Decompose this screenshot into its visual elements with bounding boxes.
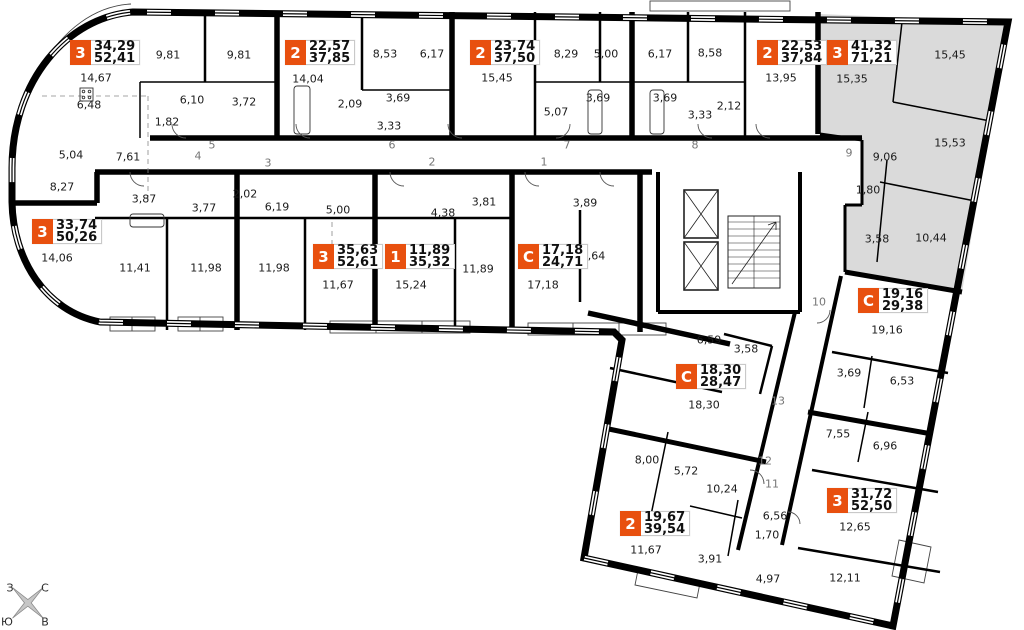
room-area-label: 2,09 [338, 98, 363, 111]
room-area-label: 5,00 [326, 204, 351, 217]
room-area-label: 3,33 [688, 109, 713, 122]
apartment-areas: 11,8935,32 [406, 244, 455, 269]
room-area-label: 3,69 [653, 92, 678, 105]
hall-number: 5 [209, 139, 216, 152]
room-area-label: 6,53 [890, 375, 915, 388]
compass-direction-label: Ю [1, 616, 13, 629]
room-area-label: 3,89 [573, 197, 598, 210]
apartment-type: С [518, 244, 539, 269]
room-area-label: 10,24 [706, 483, 738, 496]
room-area-label: 6,48 [77, 99, 102, 112]
room-area-label: 3,58 [734, 343, 759, 356]
apartment-type: 3 [827, 488, 848, 513]
hall-number: 4 [195, 150, 202, 163]
apartment-type: 3 [313, 244, 334, 269]
hall-number: 13 [771, 395, 785, 408]
room-area-label: 3,58 [865, 233, 890, 246]
room-area-label: 7,55 [826, 428, 851, 441]
room-area-label: 8,29 [554, 48, 579, 61]
room-area-label: 2,12 [717, 100, 742, 113]
room-area-label: 3,69 [586, 92, 611, 105]
total-area: 28,47 [700, 377, 741, 389]
apartment-type: 2 [285, 40, 306, 65]
total-area: 35,32 [409, 257, 450, 269]
room-area-label: 6,10 [180, 94, 205, 107]
room-area-label: 10,44 [915, 232, 947, 245]
floor-plan: 9,819,8114,676,486,101,823,725,047,618,2… [0, 0, 1024, 630]
room-area-label: 3,69 [386, 92, 411, 105]
room-area-label: 3,81 [472, 196, 497, 209]
total-area: 71,21 [851, 53, 892, 65]
apartment-areas: 22,5737,85 [306, 40, 355, 65]
compass-direction-label: С [41, 582, 49, 595]
hall-number: 2 [429, 156, 436, 169]
room-area-label: 15,35 [836, 73, 868, 86]
apartment-areas: 31,7252,50 [848, 488, 897, 513]
apartment-badge[interactable]: С18,3028,47 [676, 364, 746, 389]
hall-number: 10 [812, 296, 826, 309]
hall-number: 3 [265, 157, 272, 170]
apartment-badge[interactable]: 334,2952,41 [70, 40, 140, 65]
room-area-label: 12,11 [829, 572, 861, 585]
total-area: 37,85 [309, 53, 350, 65]
apartment-type: 2 [757, 40, 778, 65]
total-area: 37,84 [781, 53, 822, 65]
room-area-label: 18,30 [688, 399, 720, 412]
compass-direction-label: З [6, 582, 13, 595]
room-area-label: 14,06 [41, 252, 73, 265]
room-area-label: 11,98 [190, 262, 222, 275]
room-area-label: 8,00 [635, 454, 660, 467]
hall-number: 6 [389, 139, 396, 152]
apartment-type: С [858, 288, 879, 313]
room-area-label: 8,53 [373, 48, 398, 61]
labels-layer: 9,819,8114,676,486,101,823,725,047,618,2… [0, 0, 1024, 630]
apartment-badge[interactable]: 111,8935,32 [385, 244, 455, 269]
total-area: 52,61 [337, 257, 378, 269]
hall-number: 7 [564, 139, 571, 152]
apartment-badge[interactable]: 223,7437,50 [470, 40, 540, 65]
total-area: 52,50 [851, 501, 892, 513]
hall-number: 9 [846, 147, 853, 160]
room-area-label: 11,89 [462, 263, 494, 276]
room-area-label: 15,53 [934, 137, 966, 150]
room-area-label: 6,17 [420, 48, 445, 61]
apartment-type: 2 [620, 511, 641, 536]
apartment-type: 3 [827, 40, 848, 65]
apartment-areas: 34,2952,41 [91, 40, 140, 65]
apartment-badge[interactable]: 331,7252,50 [827, 488, 897, 513]
apartment-type: С [676, 364, 697, 389]
room-area-label: 6,17 [648, 48, 673, 61]
compass-direction-label: В [41, 616, 49, 629]
room-area-label: 17,18 [527, 279, 559, 292]
hall-number: 1 [541, 156, 548, 169]
room-area-label: 3,87 [132, 193, 157, 206]
apartment-badge[interactable]: С17,1824,71 [518, 244, 588, 269]
room-area-label: 6,19 [265, 201, 290, 214]
apartment-areas: 33,7450,26 [53, 219, 102, 244]
room-area-label: 3,91 [698, 553, 723, 566]
room-area-label: 9,81 [156, 49, 181, 62]
room-area-label: 8,27 [50, 181, 75, 194]
room-area-label: 11,67 [630, 544, 662, 557]
total-area: 37,50 [494, 53, 535, 65]
room-area-label: 9,06 [873, 151, 898, 164]
apartment-type: 3 [32, 219, 53, 244]
room-area-label: 3,72 [232, 96, 257, 109]
apartment-type: 1 [385, 244, 406, 269]
room-area-label: 4,97 [756, 573, 781, 586]
room-area-label: 14,67 [80, 72, 112, 85]
apartment-badge[interactable]: 222,5737,85 [285, 40, 355, 65]
room-area-label: 5,04 [59, 149, 84, 162]
hall-number: 12 [758, 455, 772, 468]
apartment-areas: 17,1824,71 [539, 244, 588, 269]
room-area-label: 7,61 [116, 151, 141, 164]
apartment-areas: 19,1629,38 [879, 288, 928, 313]
total-area: 24,71 [542, 257, 583, 269]
room-area-label: 13,95 [765, 72, 797, 85]
room-area-label: 11,98 [258, 262, 290, 275]
room-area-label: 11,67 [322, 279, 354, 292]
room-area-label: 6,56 [763, 510, 788, 523]
room-area-label: 5,00 [594, 48, 619, 61]
room-area-label: 1,70 [755, 529, 780, 542]
room-area-label: 4,38 [431, 207, 456, 220]
room-area-label: 12,65 [839, 521, 871, 534]
apartment-badge[interactable]: 219,6739,54 [620, 511, 690, 536]
room-area-label: 15,45 [481, 72, 513, 85]
hall-number: 11 [765, 478, 779, 491]
room-area-label: 1,82 [155, 116, 180, 129]
room-area-label: 2,02 [233, 188, 258, 201]
apartment-type: 3 [70, 40, 91, 65]
room-area-label: 5,72 [674, 465, 699, 478]
apartment-areas: 41,3271,21 [848, 40, 897, 65]
compass-rose: ЗСЮВ [0, 576, 58, 630]
room-area-label: 3,69 [837, 367, 862, 380]
room-area-label: 14,04 [292, 73, 324, 86]
room-area-label: 11,41 [119, 262, 151, 275]
apartment-areas: 23,7437,50 [491, 40, 540, 65]
room-area-label: 1,80 [856, 184, 881, 197]
apartment-badge[interactable]: С19,1629,38 [858, 288, 928, 313]
apartment-type: 2 [470, 40, 491, 65]
room-area-label: 6,59 [697, 334, 722, 347]
apartment-badge[interactable]: 335,6352,61 [313, 244, 383, 269]
room-area-label: 19,16 [871, 324, 903, 337]
room-area-label: 9,81 [227, 49, 252, 62]
hall-number: 8 [692, 139, 699, 152]
room-area-label: 8,58 [698, 47, 723, 60]
apartment-areas: 19,6739,54 [641, 511, 690, 536]
apartment-badge[interactable]: 341,3271,21 [827, 40, 897, 65]
room-area-label: 5,07 [544, 106, 569, 119]
room-area-label: 15,45 [934, 49, 966, 62]
room-area-label: 3,33 [377, 120, 402, 133]
apartment-badge[interactable]: 222,5337,84 [757, 40, 827, 65]
total-area: 39,54 [644, 524, 685, 536]
apartment-areas: 22,5337,84 [778, 40, 827, 65]
apartment-badge[interactable]: 333,7450,26 [32, 219, 102, 244]
room-area-label: 15,24 [395, 279, 427, 292]
room-area-label: 6,96 [873, 440, 898, 453]
total-area: 52,41 [94, 53, 135, 65]
apartment-areas: 35,6352,61 [334, 244, 383, 269]
total-area: 50,26 [56, 232, 97, 244]
apartment-areas: 18,3028,47 [697, 364, 746, 389]
total-area: 29,38 [882, 301, 923, 313]
room-area-label: 3,77 [192, 202, 217, 215]
